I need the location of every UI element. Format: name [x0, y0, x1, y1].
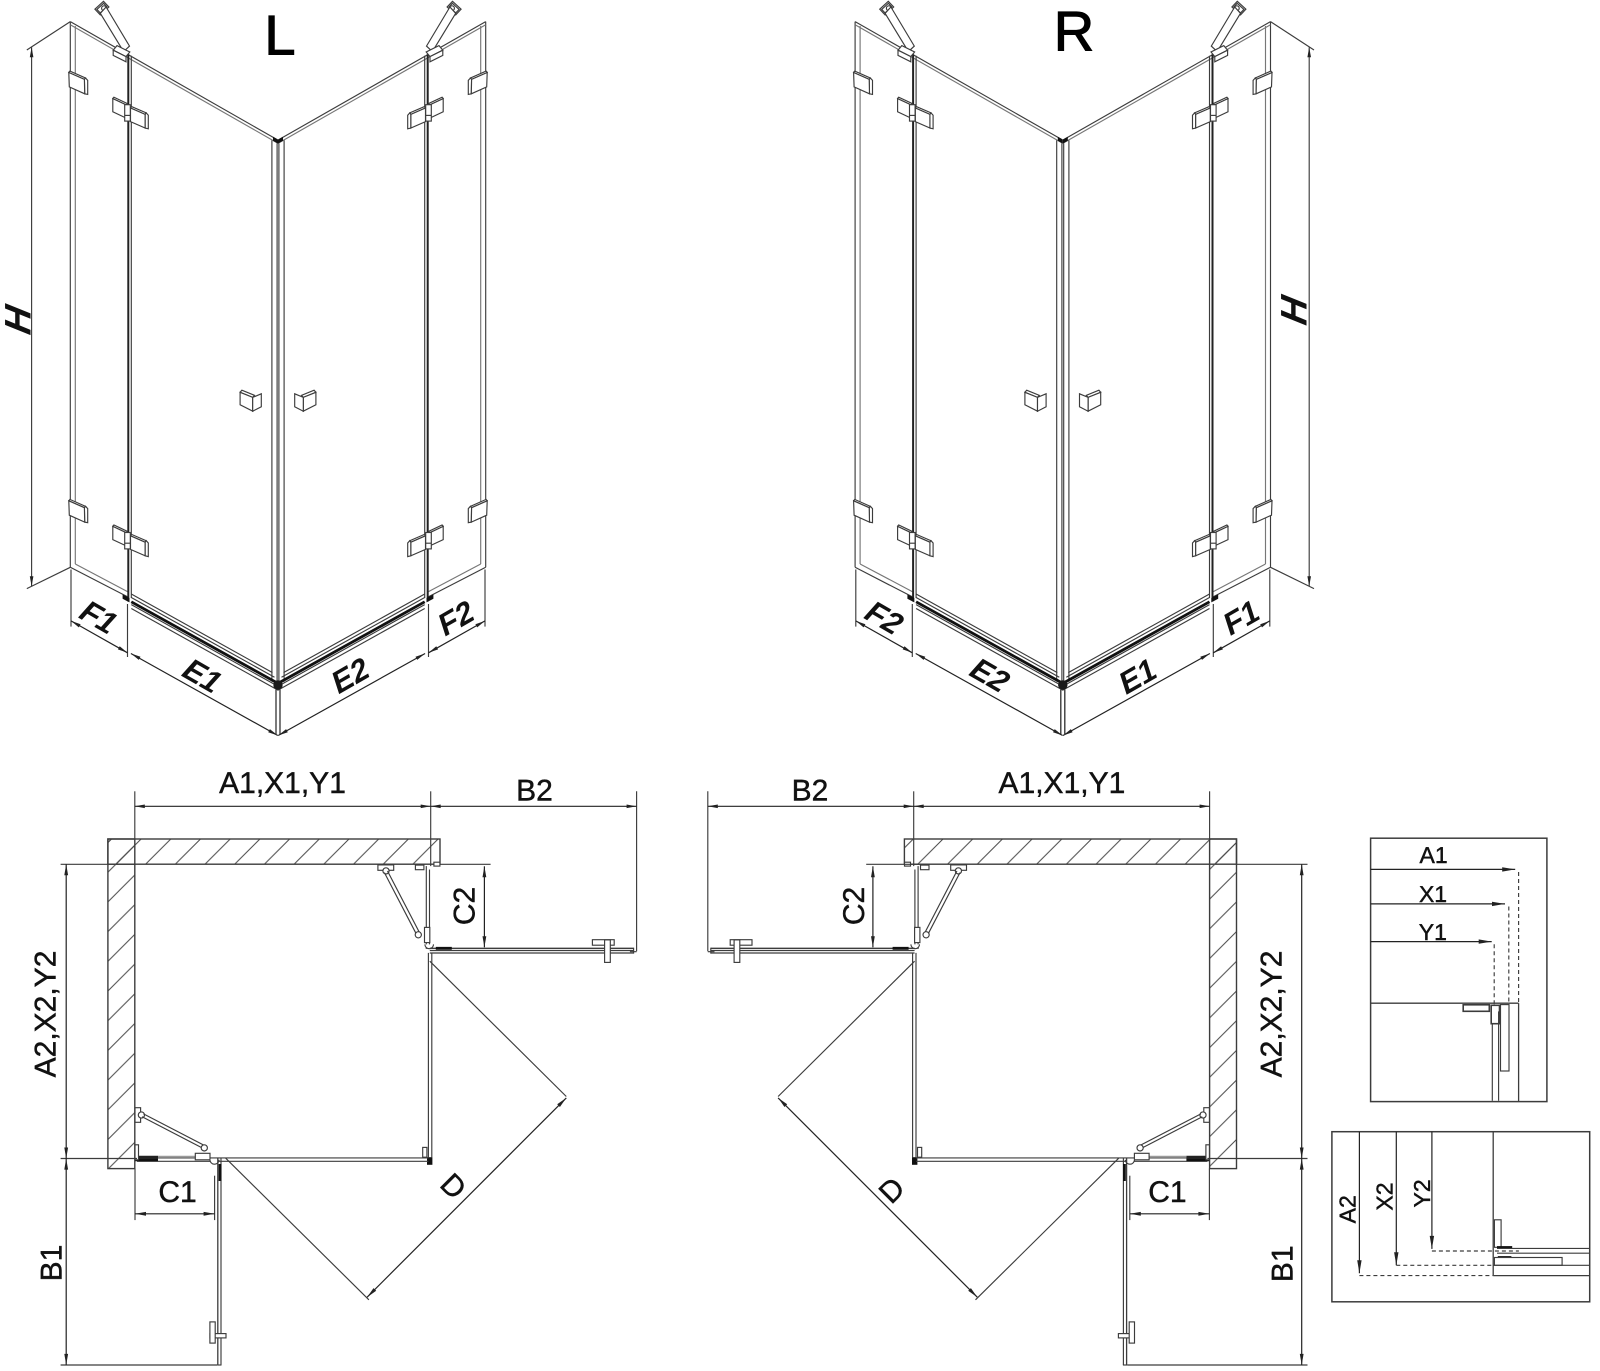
svg-text:A2,X2,Y2: A2,X2,Y2 [1255, 951, 1288, 1078]
svg-text:C2: C2 [449, 887, 482, 925]
svg-text:X1: X1 [1419, 881, 1447, 907]
svg-text:A1,X1,Y1: A1,X1,Y1 [219, 767, 346, 800]
svg-text:R: R [1054, 0, 1094, 63]
svg-text:A2: A2 [1334, 1195, 1360, 1223]
svg-text:A1,X1,Y1: A1,X1,Y1 [999, 767, 1126, 800]
svg-text:C1: C1 [1148, 1176, 1186, 1209]
svg-text:C1: C1 [158, 1176, 196, 1209]
svg-text:C2: C2 [838, 887, 871, 925]
svg-text:B2: B2 [792, 775, 829, 808]
svg-text:B1: B1 [35, 1245, 68, 1282]
svg-text:B1: B1 [1266, 1245, 1299, 1282]
svg-text:A2,X2,Y2: A2,X2,Y2 [30, 951, 63, 1078]
svg-text:Y2: Y2 [1409, 1179, 1435, 1207]
svg-text:X2: X2 [1371, 1182, 1397, 1210]
svg-text:Y1: Y1 [1419, 919, 1447, 945]
svg-text:B2: B2 [516, 775, 553, 808]
svg-text:L: L [264, 4, 295, 67]
svg-text:A1: A1 [1420, 842, 1448, 868]
